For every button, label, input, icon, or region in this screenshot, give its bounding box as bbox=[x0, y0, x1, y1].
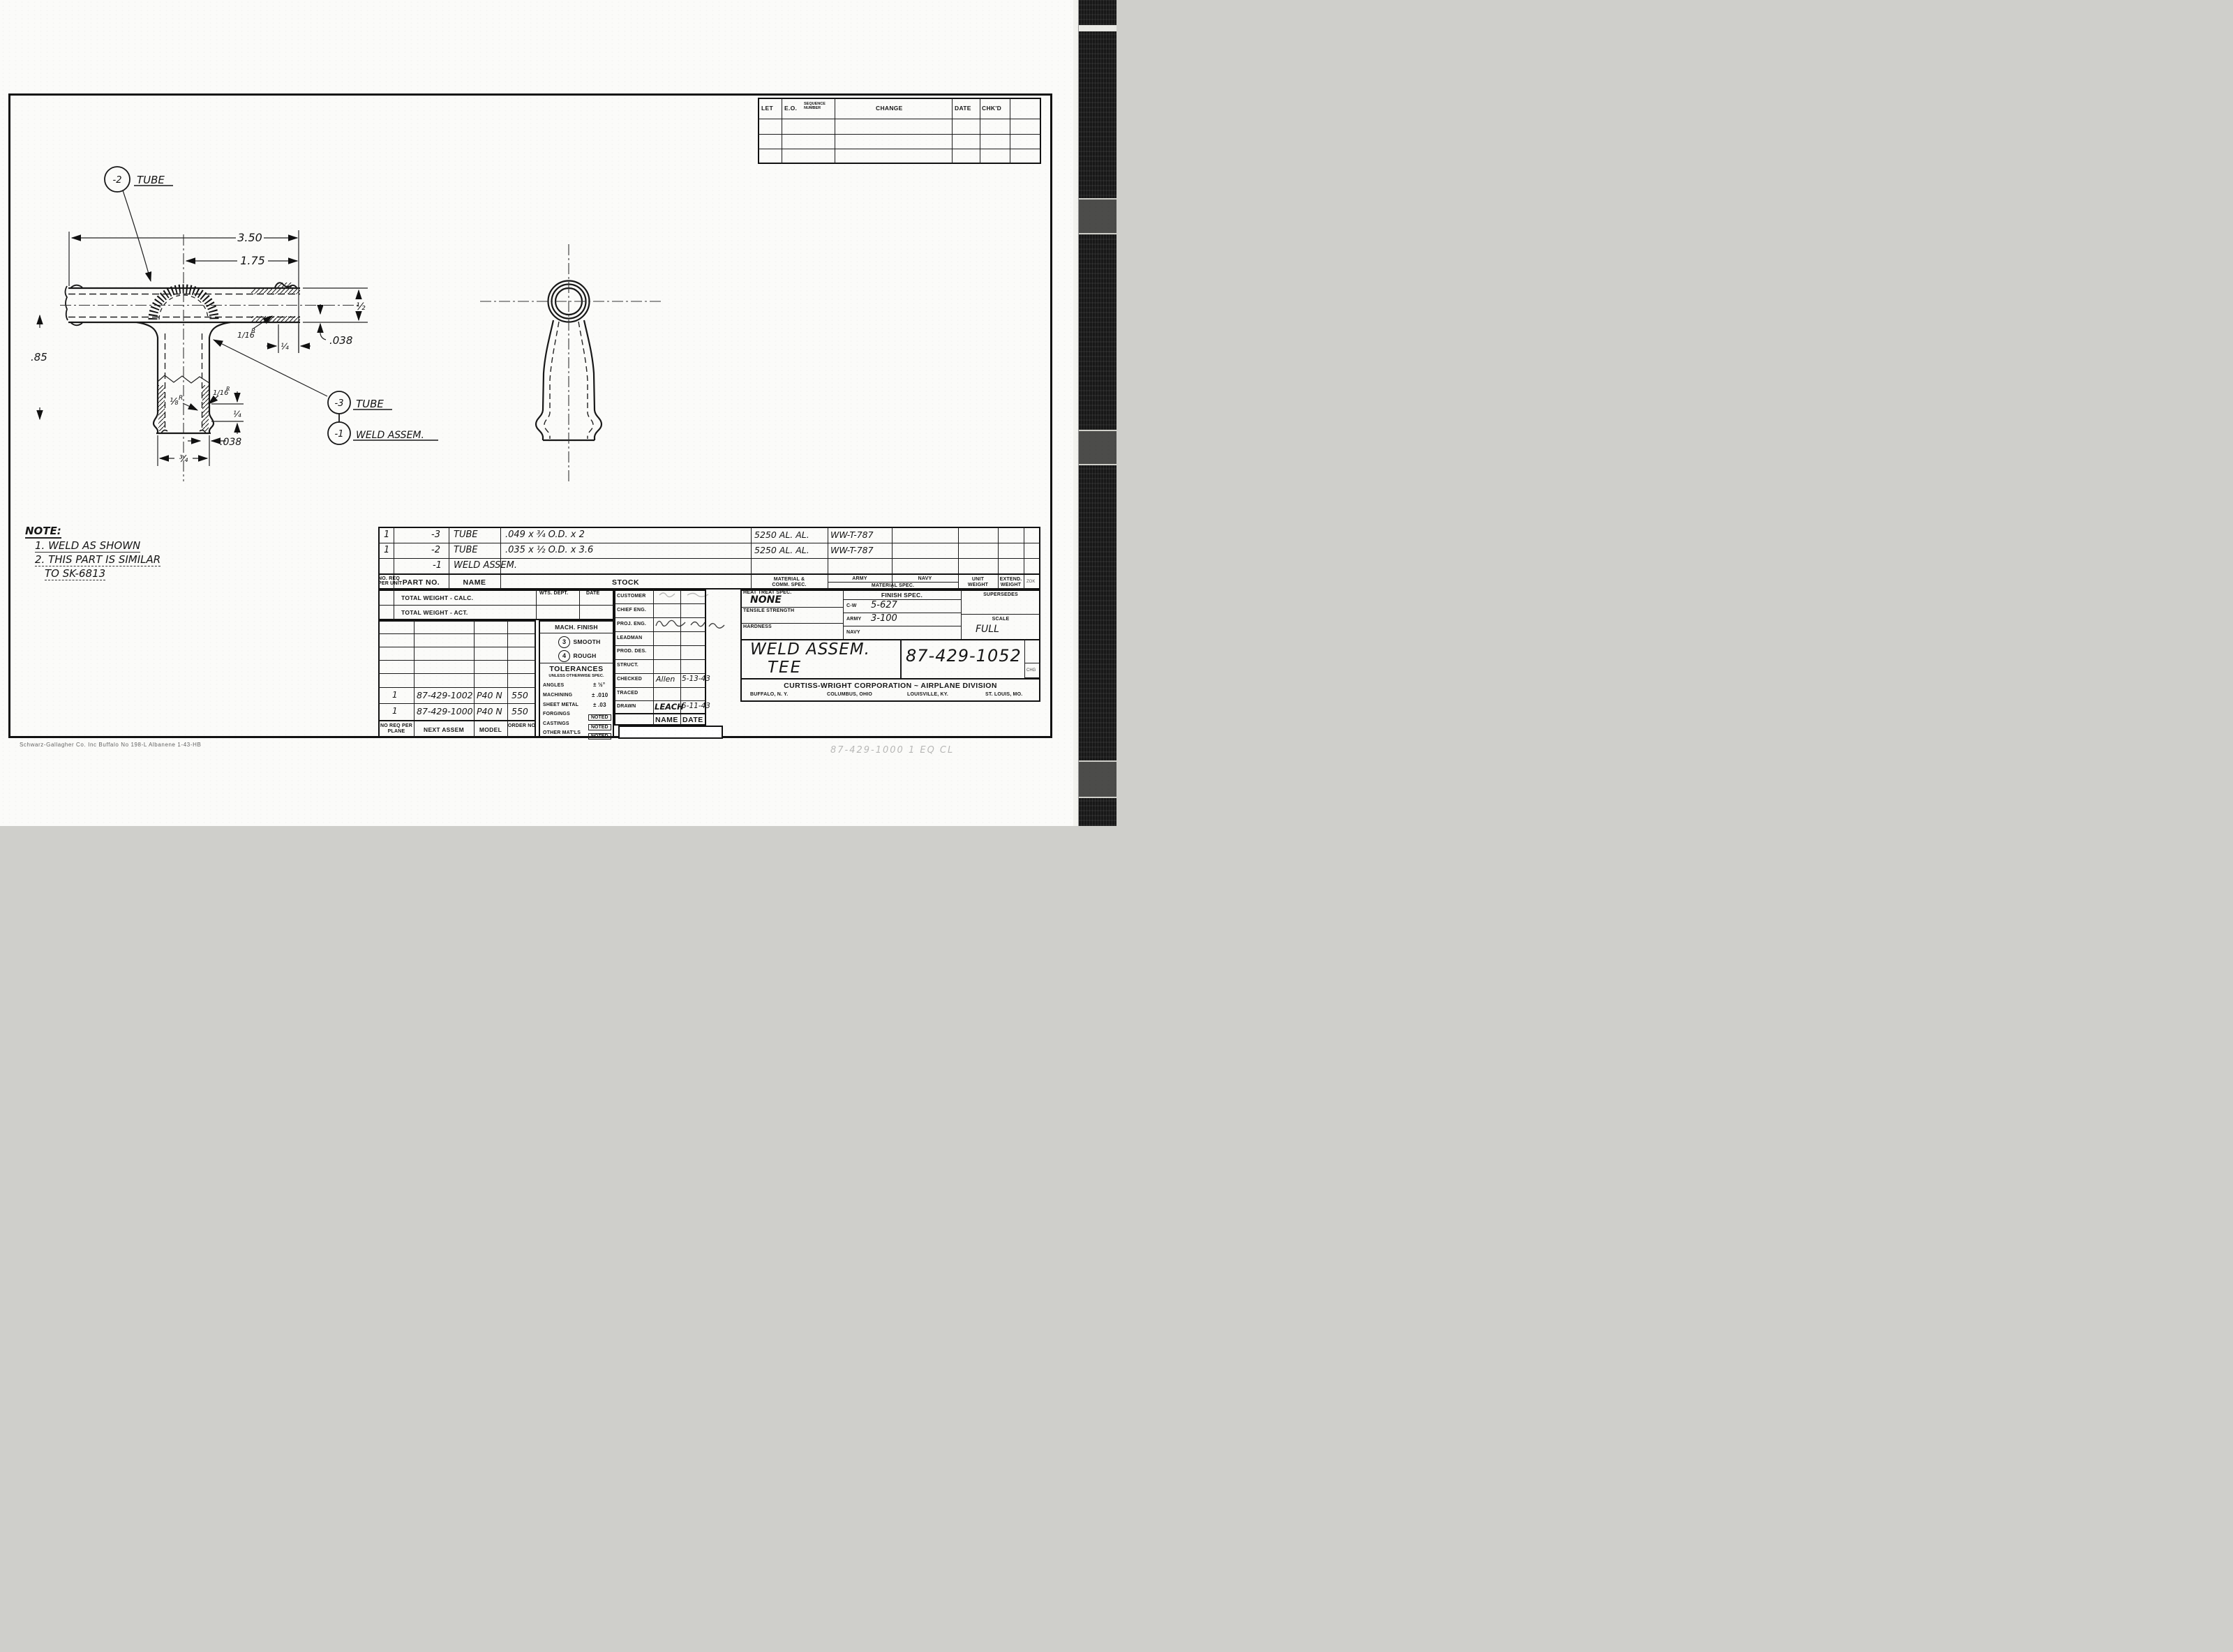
company-loc4: ST. LOUIS, MO. bbox=[985, 692, 1022, 697]
hardness-label: HARDNESS bbox=[743, 624, 772, 629]
dim-to-center: 1.75 bbox=[240, 254, 265, 267]
part-row-material: 5250 AL. AL. bbox=[754, 530, 809, 540]
title-line1: WELD ASSEM. bbox=[750, 640, 870, 659]
signoff-footer-date: DATE bbox=[682, 716, 703, 724]
signoff-leadman: LEADMAN bbox=[617, 636, 642, 640]
next-assem-qty: 1 bbox=[392, 706, 398, 716]
dim-branch-od: ¾ bbox=[179, 454, 188, 465]
header-unit-weight: UNITWEIGHT bbox=[958, 577, 998, 587]
part-row-qty: 1 bbox=[384, 545, 389, 555]
drawn-date: 5-11-43 bbox=[682, 702, 710, 710]
dim-branch-wall: .038 bbox=[220, 437, 241, 448]
balloon-minus3-id: -3 bbox=[335, 398, 344, 409]
tol-other-matls: OTHER MAT'LS bbox=[543, 730, 581, 735]
header-material: MATERIAL &COMM. SPEC. bbox=[751, 577, 828, 587]
header-stock: STOCK bbox=[500, 578, 751, 587]
heat-treat-value: NONE bbox=[750, 594, 782, 606]
part-row-name: WELD ASSEM. bbox=[454, 560, 517, 571]
header-army: ARMY bbox=[828, 576, 892, 581]
footer-model: MODEL bbox=[474, 726, 507, 733]
part-row-stock: .035 x ½ O.D. x 3.6 bbox=[505, 545, 593, 555]
tol-castings: CASTINGS bbox=[543, 721, 569, 726]
mach-finish-smooth: 3 SMOOTH bbox=[558, 635, 601, 648]
tolerances-title: TOLERANCES bbox=[539, 665, 614, 673]
header-material-spec: MATERIAL SPEC. bbox=[828, 583, 958, 588]
next-assem-qty: 1 bbox=[392, 690, 398, 700]
drawn-name: LEACH bbox=[655, 702, 684, 712]
balloon-minus3-label: TUBE bbox=[356, 398, 384, 410]
wts-dept-label: WTS. DEPT. bbox=[539, 591, 568, 596]
header-qty: NO. REQPER UNIT bbox=[378, 576, 394, 586]
part-row-no: -3 bbox=[431, 530, 440, 540]
navy-label: NAVY bbox=[846, 630, 860, 635]
balloon-minus2-id: -2 bbox=[113, 175, 122, 186]
balloon-minus1-id: -1 bbox=[335, 429, 344, 440]
signoff-customer: CUSTOMER bbox=[617, 594, 646, 599]
scale-label: SCALE bbox=[961, 617, 1040, 622]
part-row-spec: WW-T-787 bbox=[830, 530, 874, 540]
tol-forgings: FORGINGS bbox=[543, 712, 570, 716]
balloon-minus1-label: WELD ASSEM. bbox=[356, 430, 424, 441]
next-assem-no: 87-429-1000 bbox=[417, 706, 473, 716]
dim-tube-wall: .038 bbox=[329, 334, 352, 347]
part-row-name: TUBE bbox=[454, 545, 478, 555]
finish-spec-label: FINISH SPEC. bbox=[843, 592, 961, 599]
header-name: NAME bbox=[449, 578, 500, 587]
company-loc3: LOUISVILLE, KY. bbox=[907, 692, 948, 697]
chg-label: CHG bbox=[1026, 668, 1036, 673]
rough-symbol: 4 bbox=[558, 650, 570, 662]
supersedes-label: SUPERSEDES bbox=[961, 592, 1040, 597]
mach-finish-title: MACH. FINISH bbox=[539, 624, 614, 631]
tolerances-subtitle: UNLESS OTHERWISE SPEC. bbox=[539, 674, 614, 678]
next-assem-order: 550 bbox=[511, 690, 528, 700]
part-row-stock: .049 x ¾ O.D. x 2 bbox=[505, 530, 585, 540]
tol-angles-value: ± ½° bbox=[593, 682, 605, 688]
checked-name: Allen bbox=[656, 675, 675, 684]
company-loc2: COLUMBUS, OHIO bbox=[827, 692, 872, 697]
next-assem-model: P40 N bbox=[477, 690, 502, 700]
header-extend-weight: EXTEND.WEIGHT bbox=[998, 577, 1024, 587]
army-value: 3-100 bbox=[871, 613, 897, 624]
company-name: CURTISS-WRIGHT CORPORATION ~ AIRPLANE DI… bbox=[740, 682, 1040, 690]
header-navy: NAVY bbox=[892, 576, 958, 581]
signoff-proj-eng: PROJ. ENG. bbox=[617, 622, 646, 626]
dim-branch-height: .85 bbox=[31, 351, 47, 363]
pencil-note: 87-429-1000 1 EQ CL bbox=[830, 745, 954, 756]
checked-date: 5-13-43 bbox=[682, 675, 710, 683]
header-part-no: PART NO. bbox=[394, 578, 449, 587]
tol-machining: MACHINING bbox=[543, 693, 572, 698]
part-row-spec: WW-T-787 bbox=[830, 545, 874, 555]
signoff-struct: STRUCT. bbox=[617, 663, 638, 668]
title-line2: TEE bbox=[768, 659, 802, 677]
next-assem-order: 550 bbox=[511, 706, 528, 716]
wts-date-label: DATE bbox=[586, 591, 599, 596]
army-label: ARMY bbox=[846, 617, 861, 622]
signoff-prod-des: PROD. DES. bbox=[617, 649, 646, 654]
part-row-material: 5250 AL. AL. bbox=[754, 545, 809, 555]
dim-insert-depth: ¼ bbox=[281, 342, 289, 352]
part-row-name: TUBE bbox=[454, 530, 478, 540]
balloon-minus2-label: TUBE bbox=[137, 174, 165, 186]
smooth-symbol: 3 bbox=[558, 636, 570, 648]
microfilm-edge-strip bbox=[1078, 0, 1116, 826]
mach-finish-rough: 4 ROUGH bbox=[558, 649, 597, 662]
scale-value: FULL bbox=[976, 624, 999, 635]
tol-machining-value: ± .010 bbox=[592, 692, 608, 698]
dim-radius-18-r: R bbox=[179, 395, 183, 402]
dim-end-depth: ¼ bbox=[233, 410, 241, 419]
dim-weld-fillet-r: R bbox=[251, 328, 255, 335]
next-assem-model: P40 N bbox=[477, 706, 502, 716]
tol-angles: ANGLES bbox=[543, 683, 564, 688]
signoff-traced: TRACED bbox=[617, 691, 638, 696]
footer-order-no: ORDER NO bbox=[507, 723, 536, 729]
blank-stamp-box bbox=[618, 726, 723, 739]
part-row-qty: 1 bbox=[384, 530, 389, 540]
cw-label: C-W bbox=[846, 603, 857, 608]
paper-imprint: Schwarz-Gallagher Co. Inc Buffalo No 198… bbox=[20, 742, 201, 748]
part-row-no: -2 bbox=[431, 545, 440, 555]
next-assem-no: 87-429-1002 bbox=[417, 690, 473, 700]
film-gap bbox=[1073, 0, 1079, 826]
footer-next-assem: NEXT ASSEM bbox=[414, 726, 474, 733]
tol-sheet-metal: SHEET METAL bbox=[543, 703, 578, 707]
tol-sheet-metal-value: ± .03 bbox=[593, 702, 606, 708]
tol-other-matls-value: NOTED bbox=[588, 728, 611, 741]
header-zok: ZOK bbox=[1026, 580, 1035, 584]
company-loc1: BUFFALO, N. Y. bbox=[750, 692, 788, 697]
footer-no-req-per-plane: NO REQ PER PLANE bbox=[379, 723, 414, 735]
drawing-number: 87-429-1052 bbox=[906, 646, 1022, 666]
dim-radius-18: ⅛ bbox=[170, 397, 179, 407]
dim-tube-od: ½ bbox=[356, 301, 366, 313]
total-weight-act: TOTAL WEIGHT - ACT. bbox=[401, 609, 468, 616]
cw-value: 5-627 bbox=[871, 600, 897, 610]
signoff-drawn: DRAWN bbox=[617, 704, 636, 709]
signoff-chief-eng: CHIEF ENG. bbox=[617, 608, 646, 613]
total-weight-calc: TOTAL WEIGHT - CALC. bbox=[401, 594, 473, 601]
drawing-sheet: LET E.O. SEQUENCE NUMBER CHANGE DATE CHK… bbox=[0, 0, 1116, 826]
dim-radius-116-r: R bbox=[226, 386, 230, 392]
signoff-footer-name: NAME bbox=[655, 716, 678, 724]
signoff-checked: CHECKED bbox=[617, 677, 642, 682]
tensile-label: TENSILE STRENGTH bbox=[743, 608, 794, 613]
dim-overall: 3.50 bbox=[237, 231, 262, 244]
part-row-no: -1 bbox=[433, 560, 442, 571]
